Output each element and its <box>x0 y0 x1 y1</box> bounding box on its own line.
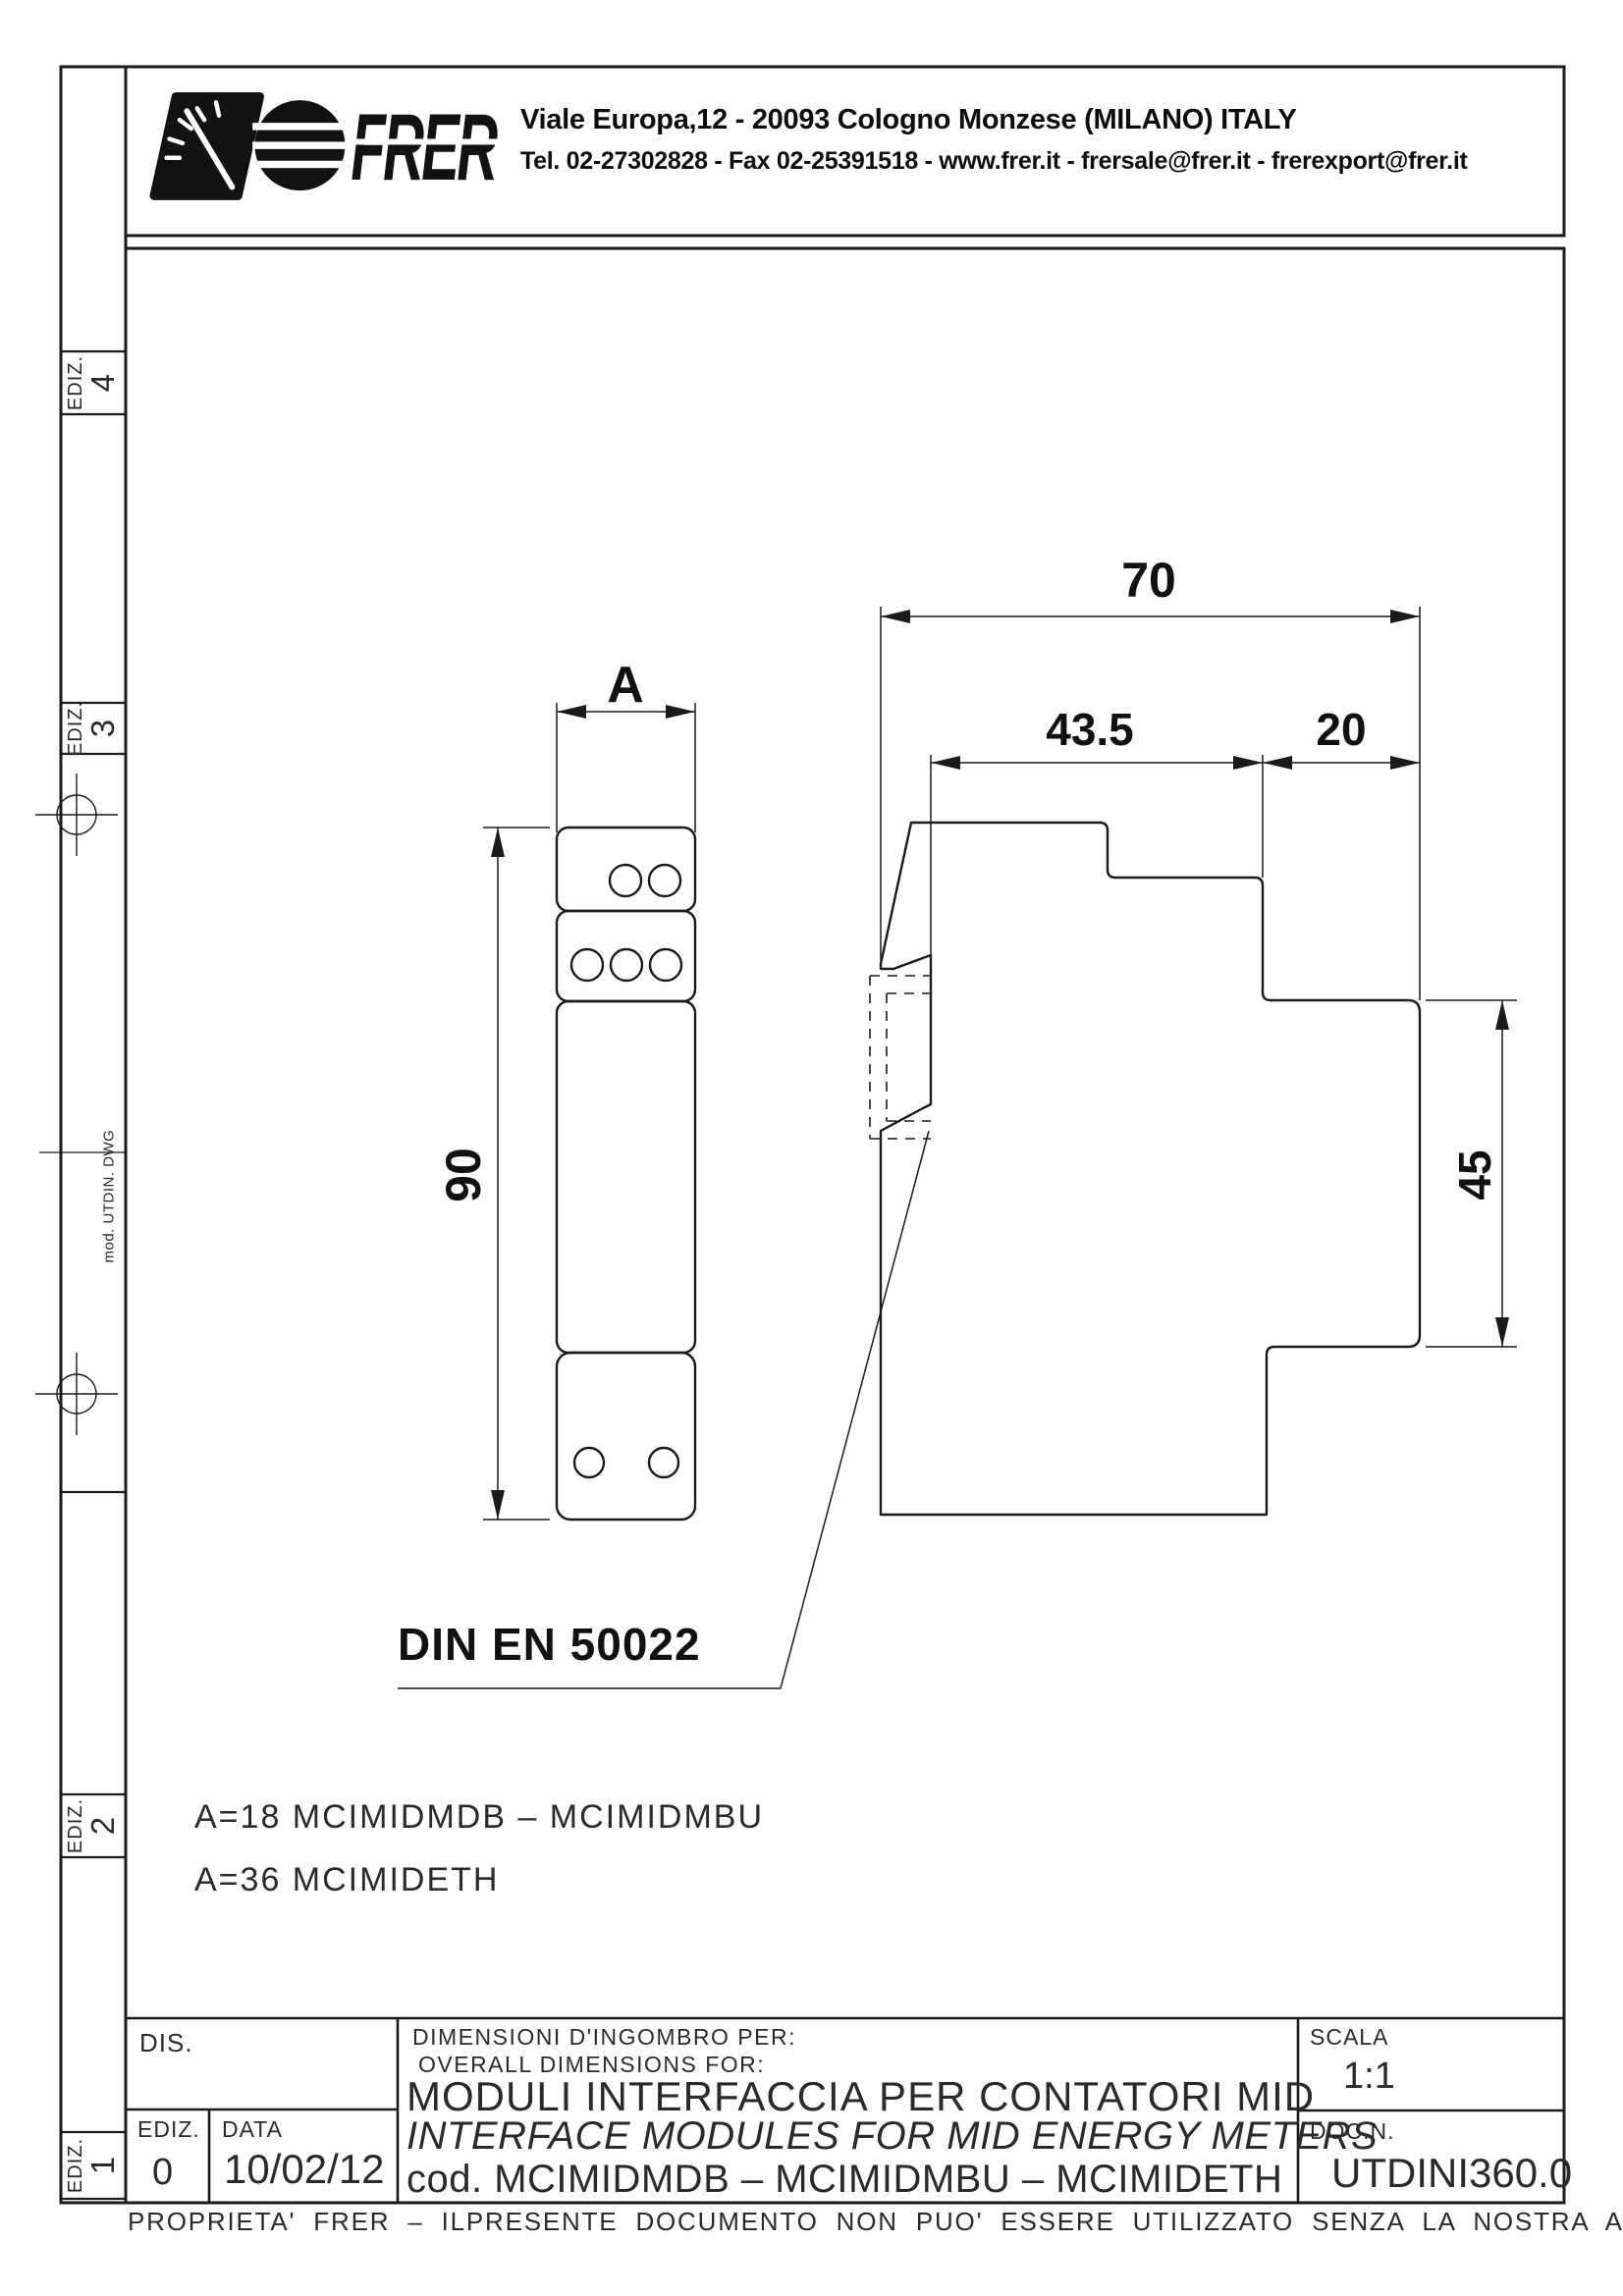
dim-label-43-5: 43.5 <box>1031 703 1149 756</box>
dim-label-70: 70 <box>1100 552 1198 609</box>
logo-s-icon <box>252 100 348 190</box>
docn-label: DOC.N. <box>1310 2118 1395 2145</box>
drawing-sheet: FRER Viale Europa,12 - 20093 Cologno Mon… <box>0 0 1623 2296</box>
variant-note-2: A=36 MCIMIDETH <box>194 1861 499 1899</box>
gauge-icon <box>154 96 260 195</box>
sheet-linework <box>0 0 1623 2296</box>
company-contacts: Tel. 02-27302828 - Fax 02-25391518 - www… <box>520 147 1468 176</box>
variant-note-1: A=18 MCIMIDMDB – MCIMIDMBU <box>194 1798 764 1837</box>
din-rail-dashed <box>870 976 931 1139</box>
ediz-marker-2: EDIZ. 2 <box>61 1794 126 1857</box>
data-value: 10/02/12 <box>224 2146 385 2193</box>
margin-file-note: mod. UTDIN. DWG <box>101 1153 118 1263</box>
dim-label-a: A <box>586 656 665 715</box>
dim-label-20: 20 <box>1292 703 1390 756</box>
ediz-marker-1: EDIZ. 1 <box>61 2132 126 2199</box>
revision-strip-lines <box>61 351 126 2199</box>
registration-marks <box>35 774 118 1435</box>
ediz-marker-4: EDIZ. 4 <box>61 351 126 414</box>
docn-value: UTDINI360.0 <box>1331 2150 1572 2197</box>
dim-label-90: 90 <box>435 1116 492 1234</box>
logo-wordmark: FRER <box>351 95 498 200</box>
company-address: Viale Europa,12 - 20093 Cologno Monzese … <box>520 104 1297 136</box>
ediz-value: 0 <box>152 2152 173 2194</box>
dis-label: DIS. <box>139 2028 193 2058</box>
footer-disclaimer: PROPRIETA' FRER – ILPRESENTE DOCUMENTO N… <box>128 2207 1623 2237</box>
code-line: cod. MCIMIDMDB – MCIMIDMBU – MCIMIDETH <box>406 2158 1282 2202</box>
side-view <box>881 823 1420 1515</box>
ediz-label: EDIZ. <box>137 2116 200 2143</box>
title-it: MODULI INTERFACCIA PER CONTATORI MID <box>406 2073 1315 2120</box>
scala-value: 1:1 <box>1343 2056 1395 2098</box>
ediz-marker-3: EDIZ. 3 <box>61 703 126 754</box>
title-en: INTERFACE MODULES FOR MID ENERGY METERS <box>406 2114 1378 2159</box>
scala-label: SCALA <box>1310 2024 1388 2051</box>
subject-it: DIMENSIONI D'INGOMBRO PER: <box>412 2024 796 2051</box>
data-label: DATA <box>222 2116 283 2143</box>
front-view <box>557 828 695 1520</box>
din-rail-standard-label: DIN EN 50022 <box>398 1618 701 1671</box>
dim-label-45: 45 <box>1448 1116 1501 1234</box>
frer-logo: FRER <box>135 86 501 208</box>
